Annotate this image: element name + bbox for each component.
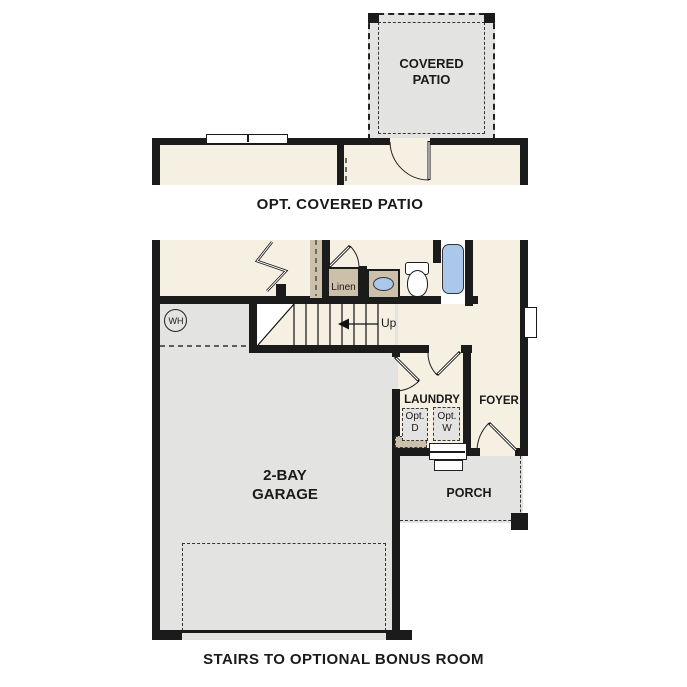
patio-post-left	[368, 13, 379, 23]
upper-interior-wall-stub	[337, 143, 344, 185]
upper-left-wall-stub	[152, 138, 160, 185]
porch-dashed-edge-bottom	[400, 520, 521, 521]
laundry-left-wall-top	[392, 347, 400, 357]
bathtub	[442, 244, 464, 294]
garage-label: 2-BAY GARAGE	[205, 466, 365, 504]
bath-right-wall	[465, 240, 473, 306]
water-heater-label: WH	[164, 316, 188, 326]
right-outer-wall	[520, 240, 528, 456]
stair-band	[255, 301, 395, 347]
laundry-bottom-wall-right	[465, 448, 480, 456]
garage-right-wall	[392, 448, 400, 640]
floor-plan: COVERED PATIO OPT. COVERED PATIO	[0, 0, 687, 687]
stairs-caption: STAIRS TO OPTIONAL BONUS ROOM	[152, 651, 535, 668]
linen-label: Linen	[326, 282, 361, 293]
stair-bottom-wall	[249, 345, 429, 353]
opt-washer-label: Opt.W	[432, 411, 462, 435]
toilet-bowl	[407, 270, 428, 297]
laundry-bottom-wall-left	[392, 448, 431, 456]
front-door-corner	[515, 448, 528, 456]
garage-door-sill	[182, 630, 386, 633]
rear-window	[206, 134, 288, 144]
foyer-window	[524, 307, 537, 338]
garage-bottom-wall-right	[386, 630, 412, 640]
upper-right-wall-stub	[520, 138, 528, 185]
covered-patio-label: COVERED PATIO	[368, 56, 495, 88]
laundry-label: LAUNDRY	[399, 394, 465, 406]
laundry-window	[429, 443, 467, 460]
opt-covered-patio-caption: OPT. COVERED PATIO	[152, 196, 528, 213]
foyer-label: FOYER	[474, 395, 524, 407]
opt-dryer-label: Opt.D	[400, 411, 430, 435]
porch-post	[511, 513, 528, 530]
tub-left-stub	[433, 240, 441, 263]
entry-stoop	[434, 460, 463, 471]
patio-door-opening	[390, 138, 430, 145]
patio-post-right	[484, 13, 495, 23]
up-label: Up	[381, 316, 411, 330]
vanity-sink	[373, 277, 394, 291]
porch-label: PORCH	[436, 486, 502, 500]
stairwell-half-wall	[310, 240, 322, 298]
garage-door-dashed	[182, 543, 386, 631]
garage-bottom-wall-left	[152, 630, 182, 640]
